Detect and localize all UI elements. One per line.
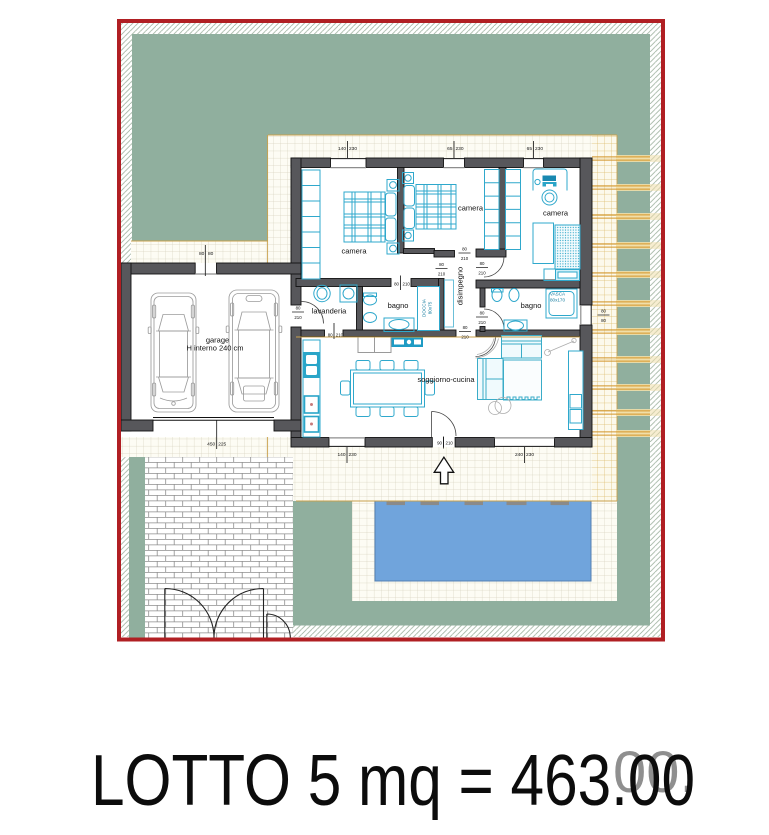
svg-text:210: 210 [478, 271, 486, 276]
svg-text:80: 80 [439, 262, 444, 267]
svg-text:80x75: 80x75 [428, 301, 433, 314]
svg-text:80: 80 [480, 261, 485, 266]
svg-text:210: 210 [294, 315, 302, 320]
svg-text:65: 65 [447, 146, 453, 152]
svg-text:230: 230 [456, 146, 464, 152]
svg-text:80: 80 [462, 247, 467, 252]
svg-text:230: 230 [526, 452, 534, 458]
svg-text:240: 240 [515, 452, 523, 458]
svg-text:80: 80 [463, 325, 468, 330]
svg-text:210: 210 [403, 282, 411, 287]
svg-text:bagno: bagno [521, 301, 542, 310]
svg-text:230: 230 [349, 452, 357, 458]
svg-text:140: 140 [338, 146, 346, 152]
svg-text:90: 90 [437, 441, 442, 446]
svg-text:140: 140 [337, 452, 345, 458]
svg-text:80: 80 [296, 306, 301, 311]
svg-text:lavanderia: lavanderia [312, 307, 347, 316]
svg-text:80: 80 [328, 333, 333, 338]
svg-text:80: 80 [199, 251, 205, 257]
svg-text:camera: camera [458, 204, 484, 213]
svg-text:80: 80 [480, 311, 485, 316]
svg-text:210: 210 [336, 333, 344, 338]
svg-text:bagno: bagno [388, 301, 409, 310]
svg-text:210: 210 [478, 320, 486, 325]
svg-text:LOTTO 5 mq = 463.00: LOTTO 5 mq = 463.00 [91, 741, 695, 821]
svg-text:soggiorno-cucina: soggiorno-cucina [417, 375, 475, 384]
svg-text:225: 225 [218, 442, 226, 448]
svg-text:230: 230 [349, 146, 357, 152]
svg-text:210: 210 [461, 335, 469, 340]
svg-text:80x170: 80x170 [550, 298, 566, 303]
svg-text:camera: camera [543, 209, 569, 218]
svg-text:230: 230 [535, 146, 543, 152]
svg-text:210: 210 [438, 272, 446, 277]
svg-text:450: 450 [207, 442, 215, 448]
svg-text:65: 65 [527, 146, 533, 152]
svg-text:camera: camera [341, 247, 367, 256]
svg-text:210: 210 [461, 256, 469, 261]
svg-text:80: 80 [394, 282, 399, 287]
svg-text:210: 210 [446, 441, 454, 446]
svg-text:VASCA: VASCA [550, 292, 566, 297]
svg-text:DOCCIA: DOCCIA [422, 298, 427, 317]
svg-text:disimpegno: disimpegno [456, 267, 465, 305]
svg-text:80: 80 [601, 318, 606, 323]
svg-text:80: 80 [208, 251, 214, 257]
svg-text:80: 80 [601, 309, 606, 314]
svg-text:H interno 240 cm: H interno 240 cm [186, 344, 243, 353]
